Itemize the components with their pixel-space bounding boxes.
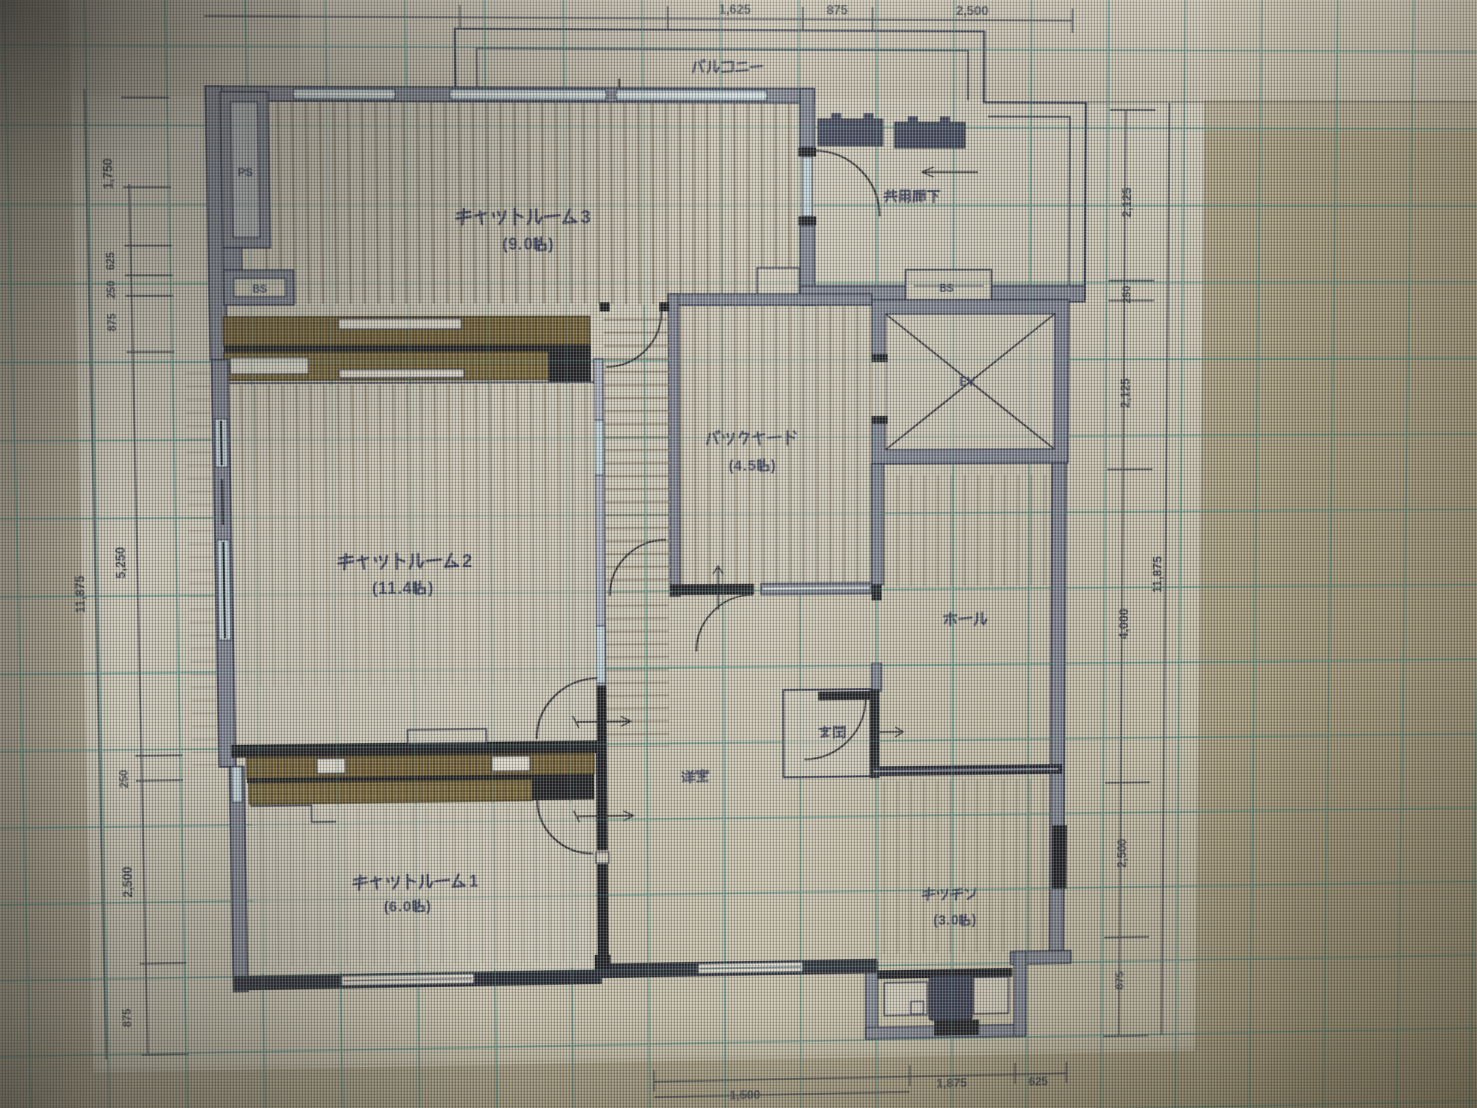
svg-text:11,875: 11,875 [73, 575, 88, 613]
svg-text:0: 0 [403, 899, 411, 915]
svg-text:4: 4 [403, 581, 412, 598]
svg-text:625: 625 [105, 252, 118, 270]
svg-text:2: 2 [462, 551, 472, 571]
svg-text:): ) [428, 581, 434, 598]
svg-text:5: 5 [748, 459, 756, 475]
svg-text:.: . [397, 581, 402, 598]
svg-text:625: 625 [1028, 1075, 1048, 1089]
svg-text:6: 6 [389, 900, 397, 916]
svg-text:875: 875 [106, 313, 119, 331]
svg-text:875: 875 [120, 1008, 133, 1028]
svg-text:4,000: 4,000 [1117, 608, 1131, 639]
svg-text:1,625: 1,625 [719, 3, 751, 17]
svg-text:1: 1 [469, 872, 479, 891]
svg-text:BS: BS [253, 285, 268, 296]
svg-text:9: 9 [508, 237, 517, 254]
svg-text:1: 1 [387, 581, 396, 598]
svg-text:.: . [518, 237, 523, 254]
svg-text:2,500: 2,500 [1115, 839, 1129, 868]
svg-text:2,500: 2,500 [120, 866, 135, 897]
svg-text:2,125: 2,125 [1120, 187, 1134, 217]
svg-text:5,250: 5,250 [113, 547, 128, 579]
svg-text:250: 250 [1121, 286, 1133, 304]
svg-text:2,125: 2,125 [1119, 378, 1133, 408]
svg-text:3: 3 [580, 207, 590, 227]
svg-text:3: 3 [938, 912, 946, 927]
svg-text:.: . [398, 900, 402, 916]
svg-text:): ) [771, 458, 776, 474]
svg-text:.: . [743, 459, 747, 475]
svg-text:4: 4 [734, 459, 743, 475]
svg-text:): ) [972, 912, 977, 927]
svg-text:): ) [426, 899, 431, 915]
svg-text:1,500: 1,500 [730, 1088, 761, 1102]
svg-text:.: . [946, 912, 950, 927]
svg-text:0: 0 [524, 237, 533, 254]
svg-text:EV: EV [959, 375, 976, 389]
svg-text:1,750: 1,750 [101, 158, 116, 189]
svg-text:): ) [548, 237, 554, 254]
svg-text:875: 875 [827, 3, 848, 17]
svg-text:250: 250 [118, 770, 131, 788]
svg-text:PS: PS [238, 167, 253, 179]
svg-text:875: 875 [1114, 971, 1127, 990]
svg-text:1: 1 [378, 581, 387, 598]
svg-text:BS: BS [940, 284, 954, 295]
svg-text:2,500: 2,500 [956, 3, 989, 18]
